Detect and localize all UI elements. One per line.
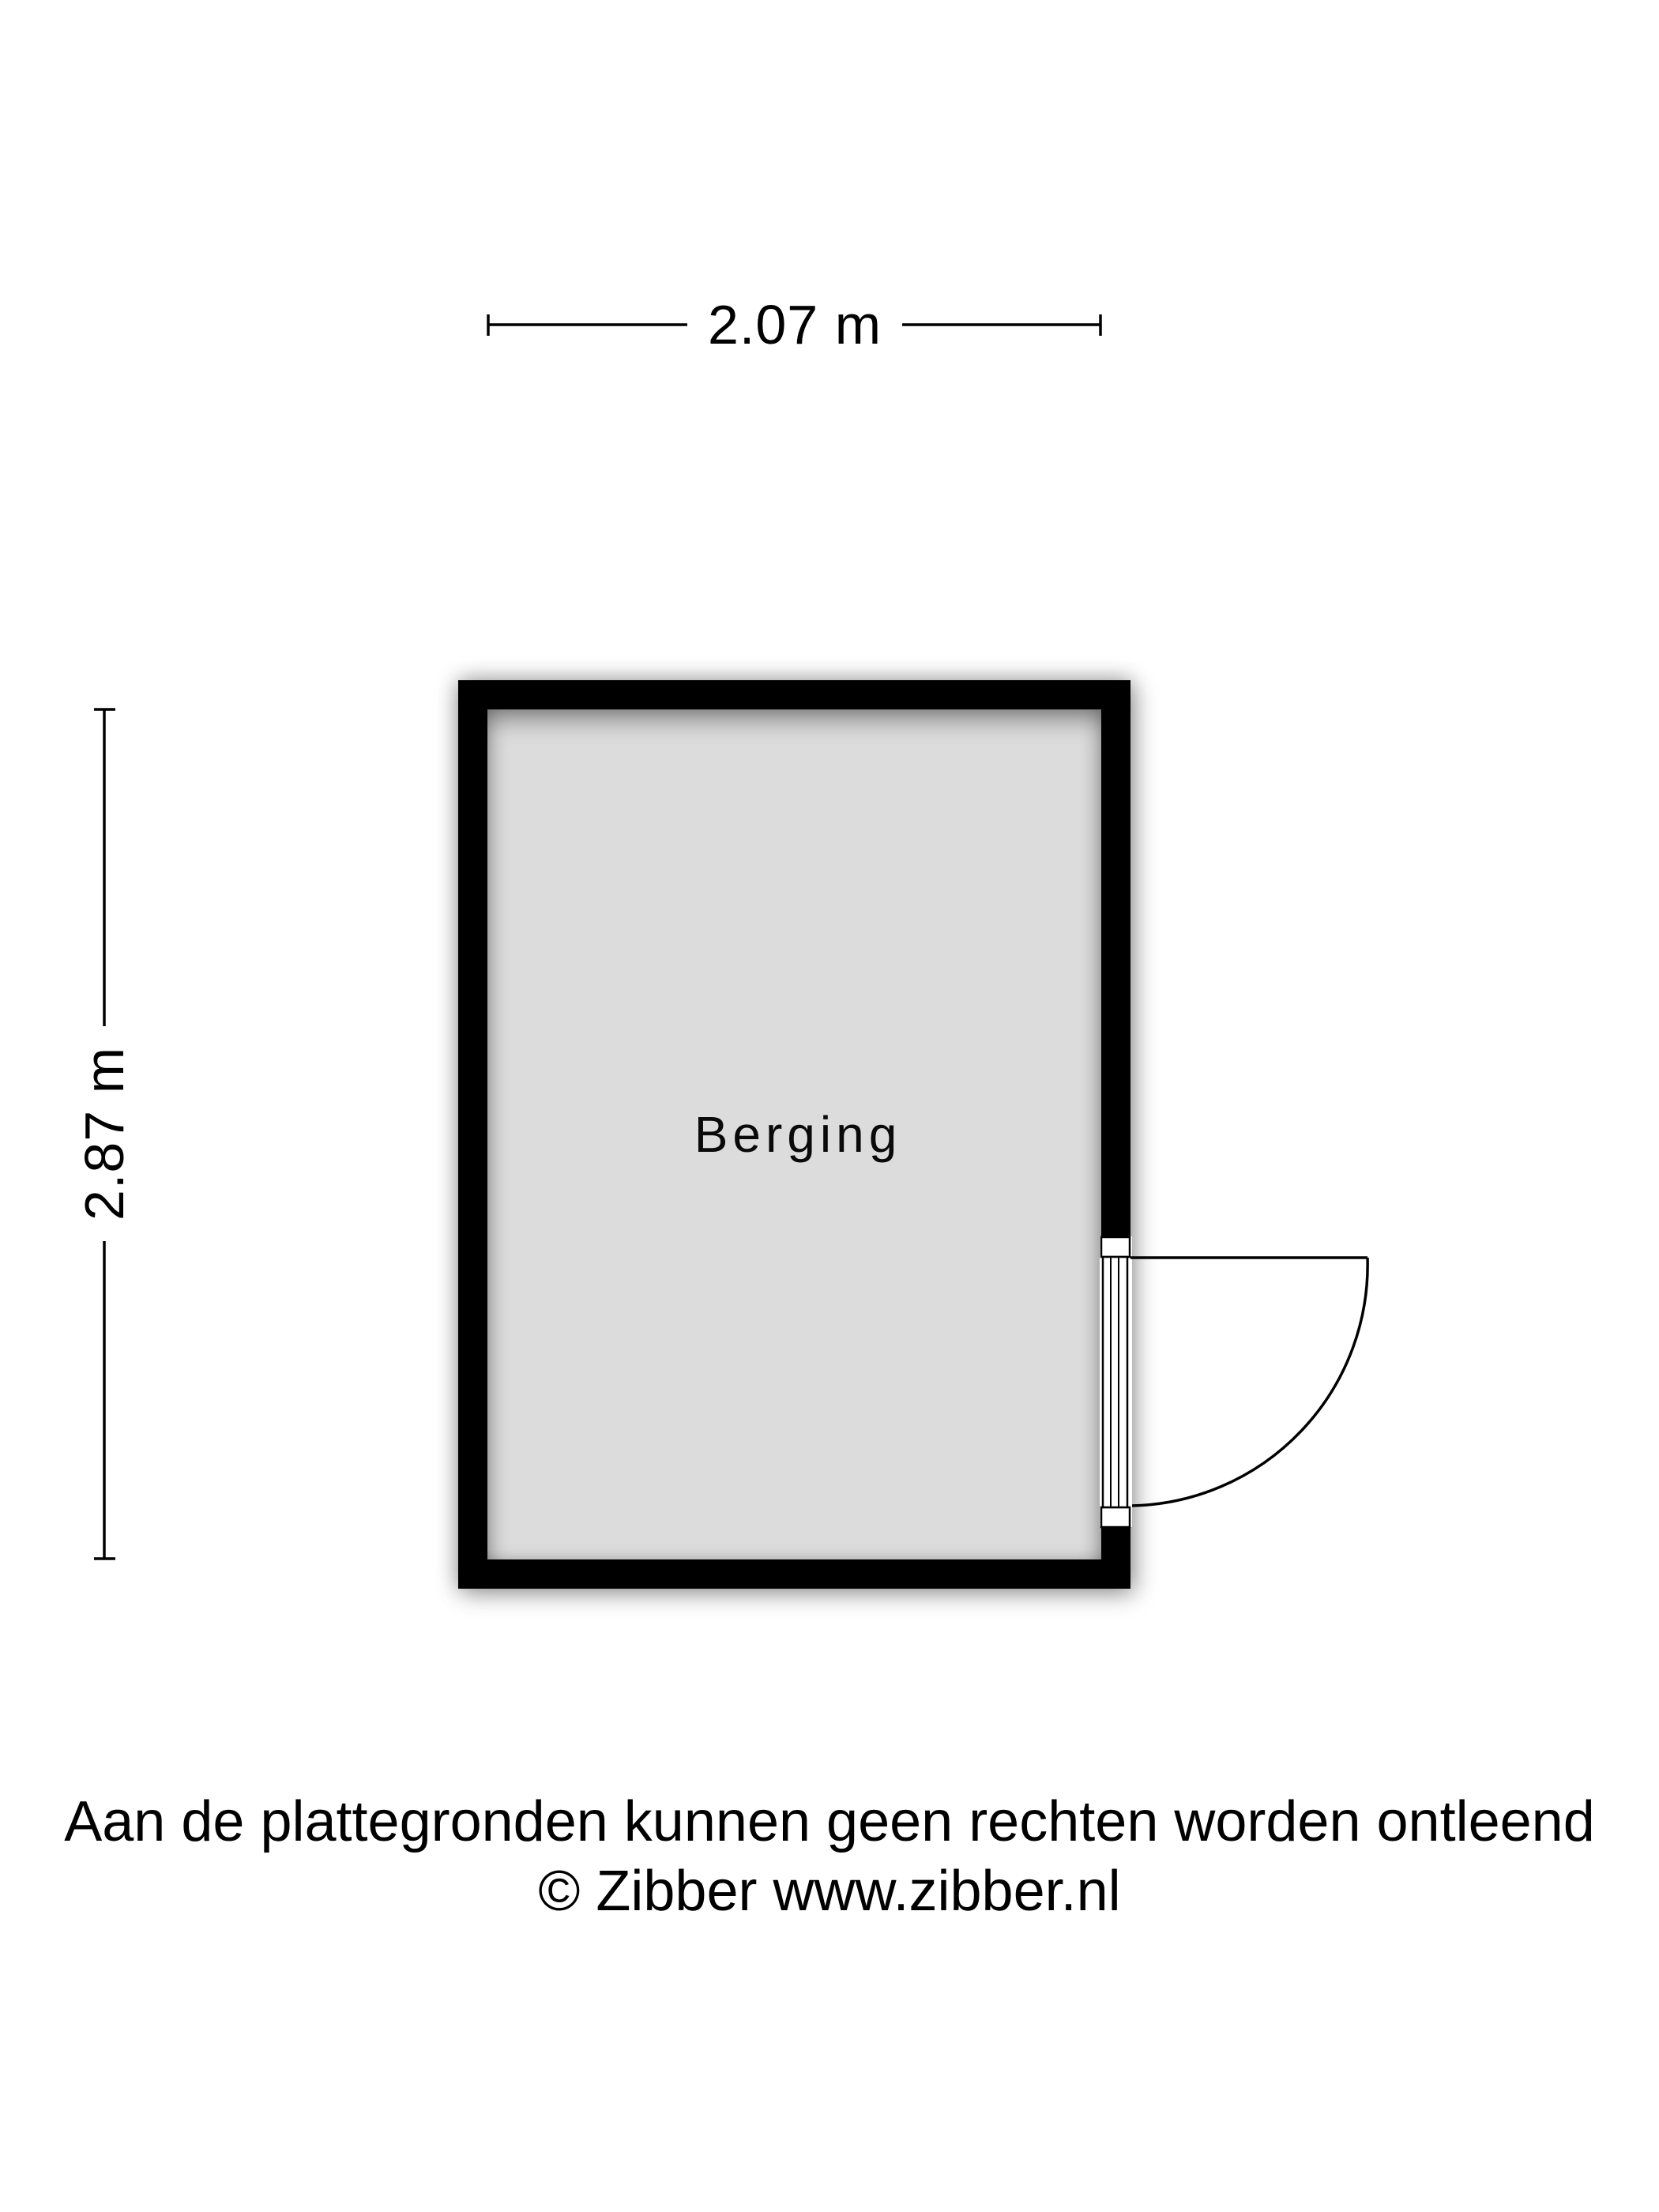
- footer: Aan de plattegronden kunnen geen rechten…: [0, 1787, 1659, 1926]
- door: [1100, 1236, 1367, 1527]
- floorplan-canvas: 2.07 m 2.87 m Berging Aan de plattegrond…: [0, 0, 1659, 2212]
- door-jamb-top: [1101, 1237, 1130, 1257]
- room-name-label: Berging: [694, 1105, 902, 1164]
- door-swing-arc: [1132, 1258, 1367, 1506]
- door-leaf-closed: [1103, 1257, 1127, 1507]
- disclaimer-text: Aan de plattegronden kunnen geen rechten…: [0, 1787, 1659, 1856]
- height-dimension-label: 2.87 m: [72, 1026, 137, 1241]
- width-dimension-label: 2.07 m: [687, 292, 902, 357]
- copyright-text: © Zibber www.zibber.nl: [0, 1856, 1659, 1926]
- door-jamb-bottom: [1101, 1507, 1130, 1527]
